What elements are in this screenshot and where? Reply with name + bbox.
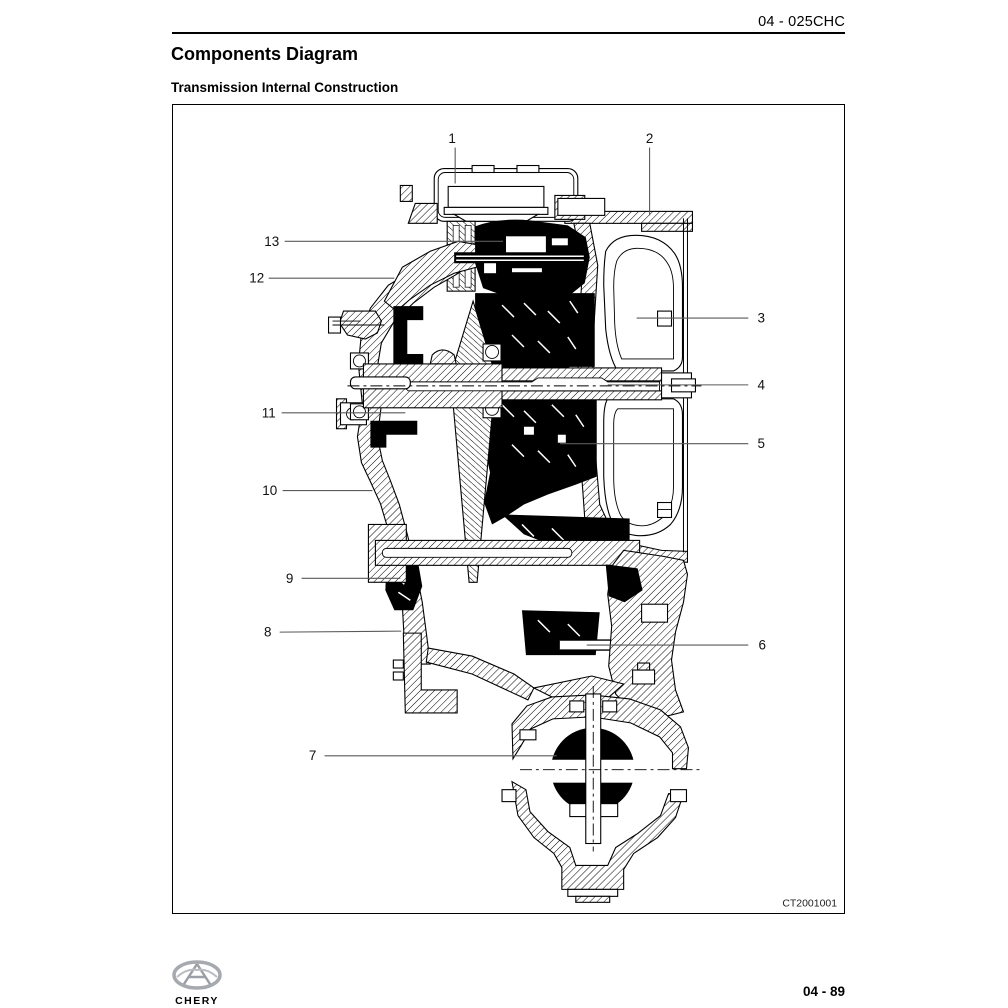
callout-leader-8 (280, 631, 402, 632)
chery-emblem-icon (171, 960, 223, 992)
callout-label-7: 7 (309, 748, 316, 763)
header-section-code: 04 - 025CHC (758, 14, 845, 30)
callout-label-8: 8 (264, 625, 271, 640)
figure-code-label: CT2001001 (782, 898, 837, 909)
chery-brand-text: CHERY (169, 995, 225, 1007)
callout-label-2: 2 (646, 131, 653, 146)
callout-label-10: 10 (262, 483, 277, 498)
manual-page: { "header": { "section_code": "04 - 025C… (0, 0, 1008, 1008)
figure-frame: 12345678910111213 CT2001001 (172, 104, 845, 914)
final-drive-case (606, 550, 688, 718)
callout-label-12: 12 (249, 271, 264, 286)
callout-label-3: 3 (758, 311, 765, 326)
callout-label-5: 5 (758, 436, 765, 451)
callout-label-11: 11 (262, 405, 276, 420)
callout-label-1: 1 (448, 131, 455, 146)
page-subtitle: Transmission Internal Construction (171, 80, 398, 95)
callout-label-13: 13 (264, 234, 279, 249)
transmission-cross-section-diagram: 12345678910111213 CT2001001 (173, 105, 844, 913)
callout-label-6: 6 (759, 638, 766, 653)
callout-label-9: 9 (286, 571, 293, 586)
header-rule (172, 32, 845, 34)
page-number: 04 - 89 (803, 984, 845, 999)
page-title: Components Diagram (171, 44, 358, 65)
callout-label-4: 4 (758, 377, 766, 392)
chery-logo: CHERY (169, 960, 225, 1007)
